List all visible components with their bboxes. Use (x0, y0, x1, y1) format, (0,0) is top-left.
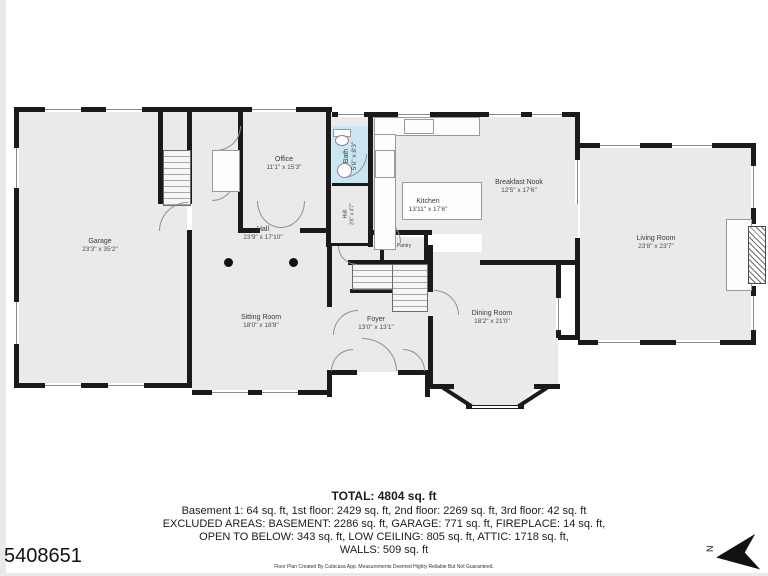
room-label-garage: Garage 23'3" x 35'2" (82, 237, 118, 255)
area-summary: TOTAL: 4804 sq. ft Basement 1: 64 sq. ft… (0, 489, 768, 570)
total-area: TOTAL: 4804 sq. ft (0, 489, 768, 503)
room-label-pantry: Pantry (397, 243, 411, 250)
wall-segment (14, 107, 192, 112)
foyer-staircase (392, 264, 428, 312)
stove-icon (404, 119, 434, 134)
room-label-hall-small: Hall 3'6" x 4'7" (343, 203, 356, 225)
room-label-living-room: Living Room 23'8" x 23'7" (637, 234, 676, 252)
window (338, 112, 364, 117)
window (262, 390, 298, 395)
wall-segment (332, 183, 368, 186)
closet (212, 150, 240, 192)
window (108, 383, 144, 388)
room-label-dining-room: Dining Room 18'2" x 21'0" (472, 309, 512, 327)
room-label-kitchen: Kitchen 13'11" x 17'6" (409, 197, 448, 215)
room-label-sitting-room: Sitting Room 18'0" x 18'8" (241, 313, 281, 331)
wall-segment (575, 112, 580, 160)
wall-segment (300, 228, 328, 233)
wall-segment (575, 268, 580, 340)
room-label-office: Office 11'1" x 15'3" (266, 155, 301, 173)
north-arrow-icon: N (700, 533, 762, 575)
window (556, 298, 561, 330)
window (14, 302, 19, 344)
fridge-icon (375, 150, 395, 178)
window (45, 107, 81, 112)
wall-segment (480, 260, 580, 265)
window (45, 383, 81, 388)
wall-segment (187, 230, 192, 388)
window (751, 296, 756, 330)
window (489, 112, 521, 117)
wall-segment (368, 112, 373, 247)
wall-segment (327, 243, 332, 307)
room-label-breakfast-nook: Breakfast Nook 12'5" x 17'6" (495, 178, 543, 196)
disclaimer-text: Floor Plan Created By Cubicasa App. Meas… (0, 564, 768, 570)
wall-segment (558, 335, 580, 340)
window (252, 107, 296, 112)
window (575, 160, 580, 204)
wall-segment (428, 245, 433, 292)
column-marker (289, 258, 298, 267)
window (598, 340, 640, 345)
floor-areas-line: Basement 1: 64 sq. ft, 1st floor: 2429 s… (0, 505, 768, 518)
window (472, 406, 518, 408)
window (106, 107, 142, 112)
room-label-hall: Hall 23'9" x 17'10" (243, 225, 282, 243)
window (14, 148, 19, 188)
window (532, 112, 562, 117)
excluded-areas-line: OPEN TO BELOW: 343 sq. ft, LOW CEILING: … (0, 531, 768, 544)
window (676, 340, 720, 345)
window (600, 143, 640, 148)
window (212, 390, 248, 395)
north-compass: N (700, 533, 762, 575)
walls-area-line: WALLS: 509 sq. ft (0, 544, 768, 557)
window (672, 143, 712, 148)
wall-segment (428, 316, 433, 388)
floor-plan-page: Garage 23'3" x 35'2" Office 11'1" x 15'3… (0, 0, 768, 576)
listing-number: 5408651 (4, 545, 82, 568)
wall-segment (326, 107, 331, 247)
window (751, 166, 756, 208)
foyer-staircase (352, 264, 394, 290)
garage-staircase (163, 150, 191, 206)
north-label: N (705, 546, 715, 553)
column-marker (224, 258, 233, 267)
room-label-foyer: Foyer 13'0" x 13'1" (358, 315, 394, 333)
fireplace-icon (748, 226, 766, 284)
wall-segment (327, 375, 332, 397)
excluded-areas-line: EXCLUDED AREAS: BASEMENT: 2286 sq. ft, G… (0, 518, 768, 531)
room-label-bath: Bath 5'6" x 8'3" (342, 142, 360, 170)
wall-segment (14, 383, 192, 388)
